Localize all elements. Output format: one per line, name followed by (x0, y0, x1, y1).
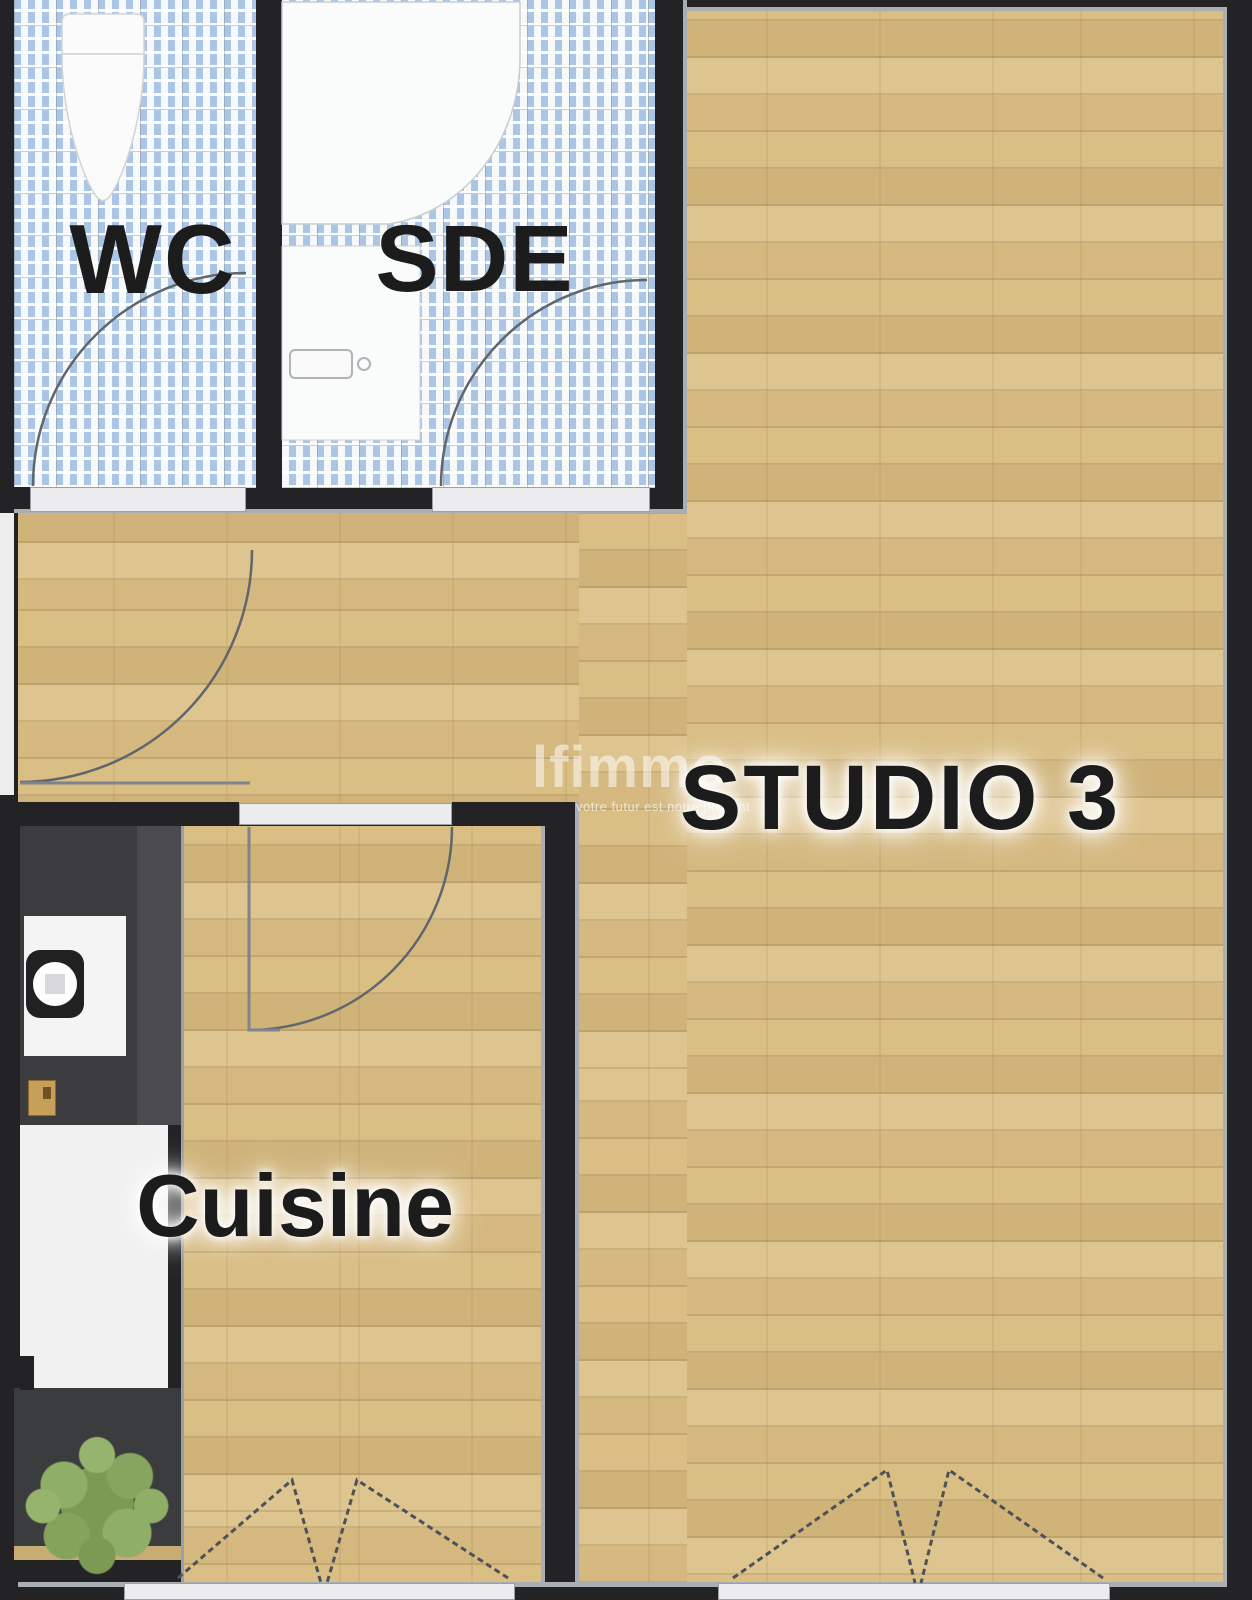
room-label-sde: SDE (372, 212, 577, 307)
kitchen-door-leaf (249, 827, 280, 1030)
entrance-door-arc (20, 550, 252, 782)
floor-plan: lfimmo votre futur est notre présent WC … (0, 0, 1252, 1600)
room-label-wc: WC (58, 210, 248, 308)
shower-tray-icon (282, 2, 520, 224)
toilet-icon (62, 14, 144, 201)
kitchen-french-door (178, 1480, 508, 1583)
studio-french-door (733, 1470, 1103, 1583)
room-label-studio: STUDIO 3 (630, 752, 1170, 844)
kitchen-door-arc (249, 827, 452, 1030)
room-label-cuisine: Cuisine (115, 1162, 475, 1250)
